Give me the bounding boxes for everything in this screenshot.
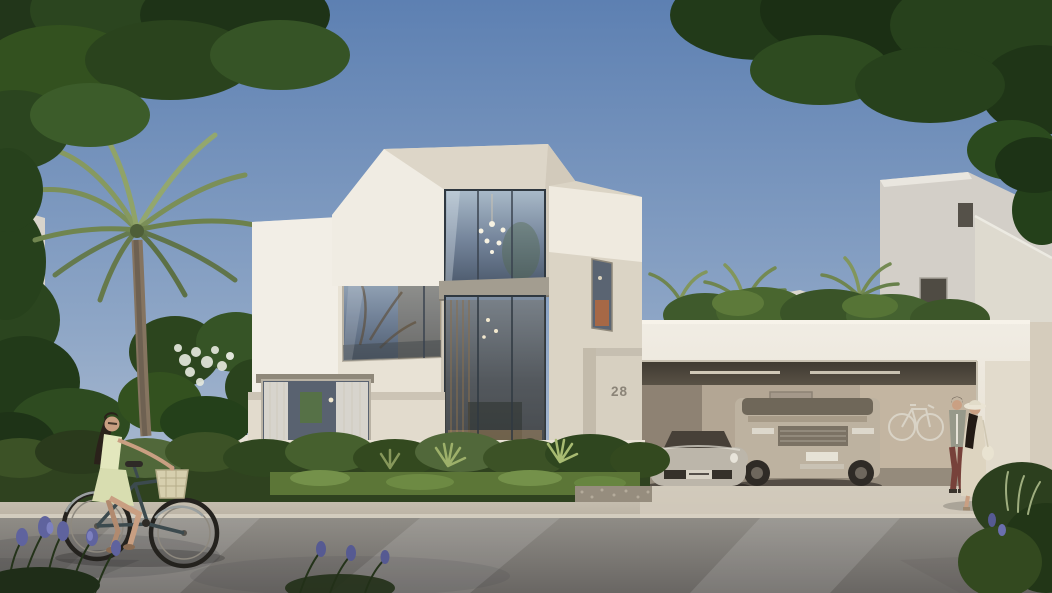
bicycle-basket bbox=[156, 470, 188, 498]
house-number: 28 bbox=[611, 384, 628, 399]
atrium-upper-glazing bbox=[445, 190, 545, 282]
narrow-window bbox=[592, 259, 612, 331]
handbag bbox=[982, 446, 994, 461]
bg-villa-window-small bbox=[958, 203, 973, 227]
garage-interior bbox=[642, 361, 979, 493]
gravel-strip bbox=[575, 486, 652, 502]
interior-artwork bbox=[300, 392, 322, 423]
bicycle-seat bbox=[125, 461, 143, 467]
ceiling-light bbox=[810, 371, 900, 374]
villa-render: 28 bbox=[0, 0, 1052, 593]
ceiling-light bbox=[690, 371, 780, 374]
suv-license-plate bbox=[806, 452, 838, 461]
